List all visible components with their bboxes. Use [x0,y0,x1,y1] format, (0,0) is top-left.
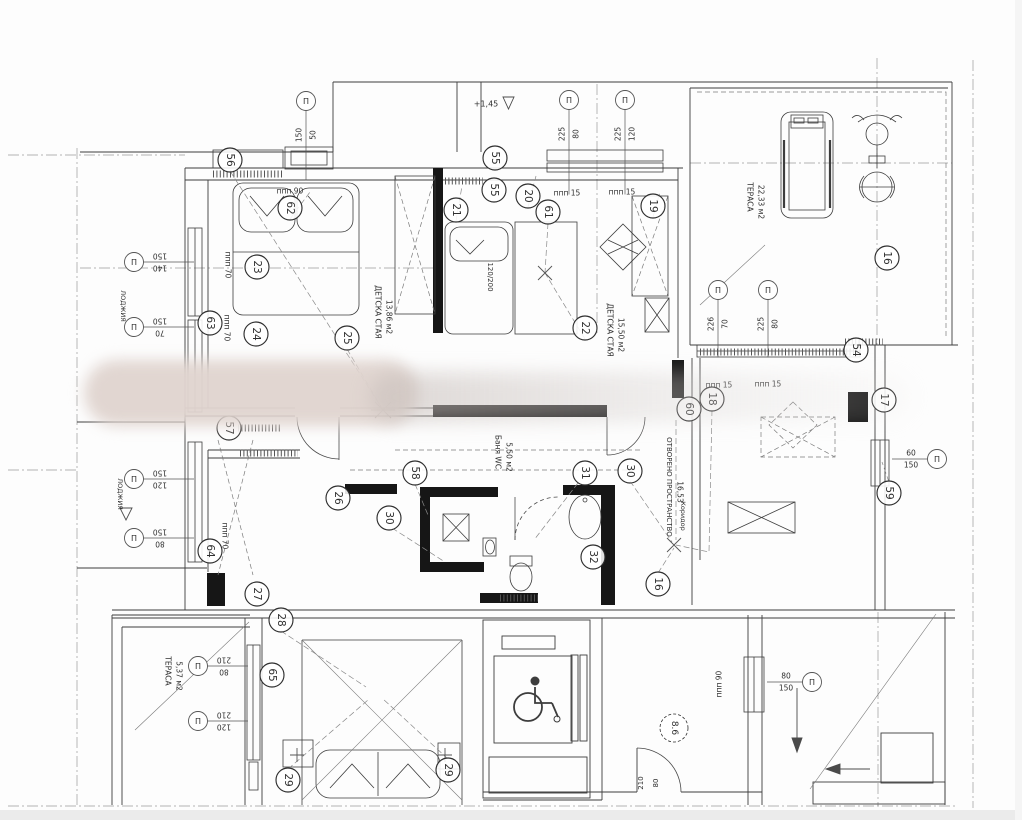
callout-number: 25 [341,331,353,344]
right-gray-strip [1015,0,1022,820]
callout-58: 58 [403,461,427,485]
misc-text: 210 [637,776,645,789]
room-label-text: 5,50 м2 [505,442,514,472]
room-label-text: ЛОДЖИЯ [119,290,127,321]
callout-30: 30 [618,459,642,483]
callout-29: 29 [276,768,300,792]
callout-57: 57 [217,416,241,440]
callout-32: 32 [581,545,605,569]
window-marker-glyph: П [131,534,137,543]
callout-24: 24 [244,322,268,346]
callout-number: 24 [250,327,262,341]
callout-28: 28 [269,608,293,632]
callout-number: 57 [223,421,235,434]
dim-text: 80 [155,540,165,549]
room-label-text: 15,50 м2 [617,318,626,353]
room-label-text: 13,86 м2 [385,300,394,335]
dim-text: 80 [219,668,229,677]
callout-17: 17 [872,388,896,412]
callout-number: 16 [652,577,664,591]
callout-21: 21 [444,198,468,222]
callout-number: 65 [266,668,278,681]
room-label-text: Баня WC [494,435,503,469]
callout-number: 21 [450,203,462,216]
callout-65: 65 [260,663,284,687]
callout-22: 22 [573,316,597,340]
ppp-label: ппп 70 [221,523,230,550]
callout-number: 64 [204,544,216,558]
callout-number: 61 [542,205,554,218]
room-label-8: Коридор [679,501,687,531]
misc-text: 80 [652,779,660,788]
ppp-label: ппп 70 [223,315,232,342]
dim-text: 140 [153,264,168,273]
window-marker-glyph: П [195,662,201,671]
dim-text: 120 [153,481,168,490]
callout-number: 30 [624,464,636,477]
callout-60: 60 [677,397,701,421]
callout-number: 8.6 [669,721,679,736]
callout-56: 56 [218,148,242,172]
dim-text: 150 [153,317,168,326]
ppp-label: ппп 70 [224,252,233,279]
callout-number: 19 [647,199,659,212]
dim-text: 225 [558,127,567,142]
floor-plan-page: ДЕТСКА СТАЯ13,86 м2ДЕТСКА СТАЯ15,50 м2ТЕ… [0,0,1022,820]
room-label-text: 22,33 м2 [757,185,766,220]
callout-23: 23 [245,255,269,279]
callout-31: 31 [573,461,597,485]
callout-64: 64 [198,539,222,563]
dim-text: 210 [217,711,232,720]
window-marker-glyph: П [131,323,137,332]
callout-number: 60 [683,402,695,415]
callout-30: 30 [377,506,401,530]
callout-number: 54 [850,343,862,357]
callout-number: 55 [488,183,500,196]
callout-number: 20 [522,189,534,202]
dim-text: 210 [217,656,232,665]
ppp-label: ппп 15 [554,189,581,198]
window-marker-glyph: П [303,97,309,106]
callout-20: 20 [516,184,540,208]
callout-55: 55 [483,146,507,170]
callout-number: 17 [878,393,890,406]
dim-text: 120 [217,723,232,732]
callout-61: 61 [536,200,560,224]
room-label-text: ТЕРАСА [746,181,755,212]
room-label-text: ДЕТСКА СТАЯ [606,303,615,356]
ppp-label: ппп 90 [715,670,724,697]
ppp-label: ппп 90 [277,187,304,196]
callout-number: 18 [706,392,718,405]
callout-8.6: 8.6 [660,714,688,742]
window-marker-glyph: П [622,96,628,105]
callout-number: 63 [204,316,216,329]
callout-number: 29 [282,773,294,786]
bottom-gray-strip [0,810,1022,820]
dim-text: 225 [757,317,766,332]
dim-text: 150 [295,128,304,143]
dim-text: 150 [153,528,168,537]
callout-number: 30 [383,511,395,524]
callout-19: 19 [641,194,665,218]
dim-text: 80 [572,129,581,139]
dim-text: 50 [309,130,318,140]
callout-number: 32 [587,550,599,563]
callout-number: 62 [284,201,296,214]
room-label-7: ЛОДЖИЯ [116,478,124,509]
dim-text: 225 [614,127,623,142]
callout-16: 16 [646,572,670,596]
callout-number: 28 [275,613,287,626]
misc-text: +1,45 [474,100,499,109]
callout-18: 18 [700,387,724,411]
dim-text: 120 [628,127,637,142]
callout-number: 22 [579,321,591,334]
misc-text: 120/200 [486,262,494,291]
window-marker-glyph: П [566,96,572,105]
callout-number: 59 [883,486,895,499]
callout-number: 55 [489,151,501,164]
callout-number: 16 [881,251,893,265]
floor-plan-svg: ДЕТСКА СТАЯ13,86 м2ДЕТСКА СТАЯ15,50 м2ТЕ… [0,0,1022,820]
dim-text: 80 [781,672,791,681]
callout-26: 26 [326,486,350,510]
callout-number: 27 [251,587,263,600]
window-marker-glyph: П [934,455,940,464]
room-label-text: 5,37 м2 [175,661,184,691]
callout-27: 27 [245,582,269,606]
dim-text: 226 [707,317,716,332]
room-label-text: 16,53 [676,481,685,503]
window-marker-glyph: П [195,717,201,726]
window-marker-glyph: П [809,678,815,687]
dim-text: 150 [779,684,794,693]
dim-text: 150 [904,461,919,470]
dim-text: 150 [153,252,168,261]
dim-text: 70 [721,319,730,329]
room-label-text: ОТВОРЕНО ПРОСТРАНСТВО [665,437,673,537]
callout-number: 58 [409,466,421,479]
callout-29: 29 [436,758,460,782]
callout-63: 63 [198,311,222,335]
room-label-text: ТЕРАСА [164,655,173,686]
callout-number: 26 [332,491,344,505]
dim-text: 150 [153,469,168,478]
dim-text: 60 [906,449,916,458]
room-label-text: ДЕТСКА СТАЯ [374,285,383,338]
ppp-label: ппп 15 [609,188,636,197]
window-marker-glyph: П [765,286,771,295]
callout-number: 23 [251,260,263,273]
window-marker-glyph: П [715,286,721,295]
window-marker-glyph: П [131,258,137,267]
room-label-text: ЛОДЖИЯ [116,478,124,509]
callout-55: 55 [482,178,506,202]
dim-text: 70 [155,329,165,338]
callout-number: 29 [442,763,454,776]
callout-number: 56 [224,153,236,167]
callout-number: 31 [579,466,591,479]
callout-62: 62 [278,196,302,220]
callout-25: 25 [335,326,359,350]
room-label-text: Коридор [679,501,687,531]
room-label-6: ЛОДЖИЯ [119,290,127,321]
ppp-label: ппп 15 [755,380,782,389]
callout-16: 16 [875,246,899,270]
dim-text: 80 [771,319,780,329]
window-marker-glyph: П [131,475,137,484]
callout-54: 54 [844,338,868,362]
callout-59: 59 [877,481,901,505]
